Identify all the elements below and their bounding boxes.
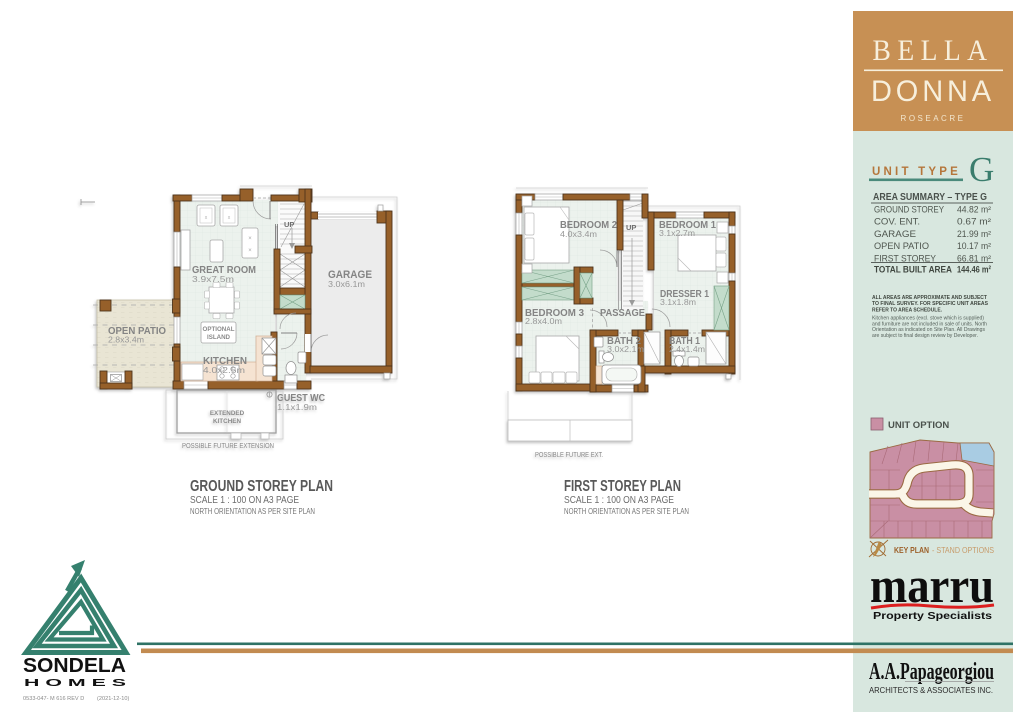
svg-text:ALL AREAS ARE APPROXIMATE AND: ALL AREAS ARE APPROXIMATE AND SUBJECT	[872, 295, 987, 301]
svg-text:NORTH ORIENTATION AS PER SITE: NORTH ORIENTATION AS PER SITE PLAN	[564, 507, 689, 516]
svg-text:OPTIONAL: OPTIONAL	[203, 326, 235, 333]
svg-text:3.1x2.7m: 3.1x2.7m	[659, 228, 695, 238]
svg-text:66.81 m²: 66.81 m²	[957, 253, 991, 263]
svg-text:UP: UP	[626, 223, 636, 232]
svg-text:4.0x3.4m: 4.0x3.4m	[560, 229, 597, 239]
svg-text:KITCHEN: KITCHEN	[213, 418, 241, 425]
svg-text:OPEN PATIO: OPEN PATIO	[874, 241, 929, 251]
svg-text:REFER TO AREA SCHEDULE.: REFER TO AREA SCHEDULE.	[872, 307, 942, 313]
svg-text:FIRST STOREY: FIRST STOREY	[874, 253, 936, 263]
svg-text:ISLAND: ISLAND	[207, 334, 231, 341]
svg-text:NORTH ORIENTATION AS PER SITE: NORTH ORIENTATION AS PER SITE PLAN	[190, 507, 315, 516]
svg-text:10.17 m²: 10.17 m²	[957, 241, 991, 251]
svg-text:FIRST STOREY PLAN: FIRST STOREY PLAN	[564, 478, 681, 495]
svg-text:PASSAGE: PASSAGE	[600, 308, 645, 319]
svg-text:UNIT OPTION: UNIT OPTION	[888, 420, 949, 431]
svg-text:GARAGE: GARAGE	[874, 229, 916, 239]
svg-text:ARCHITECTS & ASSOCIATES INC.: ARCHITECTS & ASSOCIATES INC.	[869, 685, 993, 695]
svg-text:144.46 m²: 144.46 m²	[957, 265, 991, 275]
svg-text:POSSIBLE FUTURE EXTENSION: POSSIBLE FUTURE EXTENSION	[182, 443, 274, 450]
svg-text:are subject to final design re: are subject to final design review by De…	[872, 333, 978, 339]
svg-text:GROUND STOREY PLAN: GROUND STOREY PLAN	[190, 478, 333, 495]
svg-text:EXTENDED: EXTENDED	[210, 410, 245, 417]
svg-text:3.0x6.1m: 3.0x6.1m	[328, 279, 365, 289]
svg-text:0533-047- M 616 REV D: 0533-047- M 616 REV D	[23, 696, 84, 702]
svg-text:BELLA: BELLA	[873, 34, 994, 67]
svg-text:2.8x3.4m: 2.8x3.4m	[108, 335, 144, 345]
svg-text:×: ×	[248, 248, 252, 254]
svg-text:3.9x7.5m: 3.9x7.5m	[192, 274, 234, 284]
svg-text:ROSEACRE: ROSEACRE	[901, 114, 966, 123]
svg-text:DONNA: DONNA	[871, 75, 995, 108]
svg-text:3.0x2.1m: 3.0x2.1m	[607, 344, 644, 354]
svg-text:SCALE 1 : 100 ON A3 PAGE: SCALE 1 : 100 ON A3 PAGE	[564, 494, 674, 506]
svg-text:SONDELA: SONDELA	[23, 655, 126, 677]
svg-text:2.4x1.4m: 2.4x1.4m	[669, 344, 705, 354]
svg-text:POSSIBLE FUTURE EXT.: POSSIBLE FUTURE EXT.	[535, 452, 603, 459]
svg-text:3.1x1.8m: 3.1x1.8m	[660, 297, 696, 307]
svg-text:0.67 m²: 0.67 m²	[957, 217, 991, 227]
svg-text:2.8x4.0m: 2.8x4.0m	[525, 316, 562, 326]
svg-text:(2021-12-10): (2021-12-10)	[97, 696, 129, 702]
svg-text:UP: UP	[284, 220, 294, 229]
svg-text:21.99 m²: 21.99 m²	[957, 229, 991, 239]
svg-text:G: G	[969, 150, 994, 189]
svg-text:KEY PLAN: KEY PLAN	[894, 546, 929, 555]
svg-text:AREA SUMMARY – TYPE G: AREA SUMMARY – TYPE G	[873, 192, 987, 203]
svg-text:×: ×	[248, 236, 252, 242]
svg-text:TO FINAL SURVEY. FOR SPECIFIC: TO FINAL SURVEY. FOR SPECIFIC UNIT AREAS	[872, 301, 988, 307]
svg-text:GROUND STOREY: GROUND STOREY	[874, 205, 944, 215]
svg-text:UNIT TYPE: UNIT TYPE	[872, 166, 961, 178]
svg-text:H O M E S: H O M E S	[24, 677, 126, 689]
svg-text:TOTAL BUILT AREA: TOTAL BUILT AREA	[874, 265, 952, 275]
svg-text:Property Specialists: Property Specialists	[873, 611, 993, 622]
svg-text:4.0x2.5m: 4.0x2.5m	[203, 365, 245, 375]
svg-text:SCALE 1 : 100 ON A3 PAGE: SCALE 1 : 100 ON A3 PAGE	[190, 494, 299, 506]
svg-text:COV. ENT.: COV. ENT.	[874, 217, 920, 227]
svg-text:44.82 m²: 44.82 m²	[957, 205, 991, 215]
svg-text:- STAND OPTIONS: - STAND OPTIONS	[932, 546, 994, 555]
